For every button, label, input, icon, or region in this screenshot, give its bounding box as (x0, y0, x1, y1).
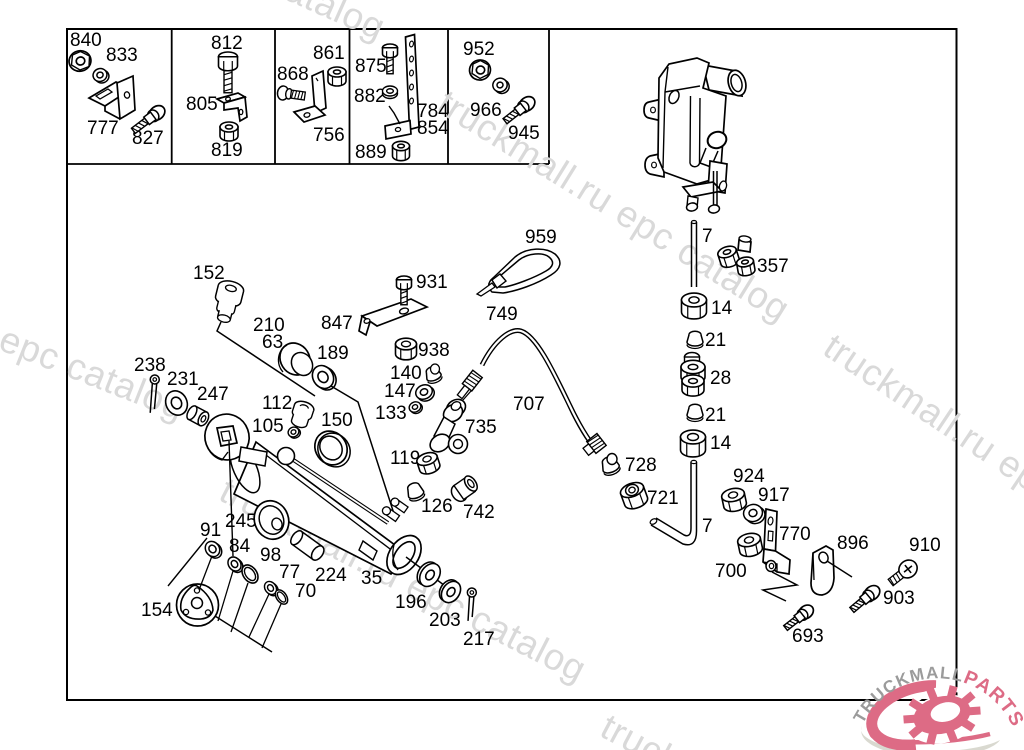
svg-text:966: 966 (470, 100, 502, 121)
svg-text:924: 924 (733, 466, 765, 487)
svg-text:238: 238 (134, 355, 166, 376)
svg-text:952: 952 (463, 39, 495, 60)
svg-text:931: 931 (416, 272, 448, 293)
svg-text:868: 868 (277, 64, 309, 85)
svg-text:189: 189 (317, 343, 349, 364)
svg-text:203: 203 (429, 610, 461, 631)
svg-text:707: 707 (513, 394, 545, 415)
svg-text:7: 7 (702, 226, 713, 247)
svg-text:833: 833 (106, 45, 138, 66)
svg-text:735: 735 (465, 417, 497, 438)
svg-text:112: 112 (262, 393, 292, 414)
svg-text:770: 770 (779, 524, 811, 545)
svg-text:91: 91 (200, 520, 221, 541)
svg-text:938: 938 (418, 340, 450, 361)
svg-text:959: 959 (525, 227, 557, 248)
svg-text:21: 21 (705, 330, 726, 351)
svg-text:903: 903 (883, 588, 915, 609)
svg-text:777: 777 (87, 118, 119, 139)
svg-text:749: 749 (486, 304, 518, 325)
svg-text:889: 889 (355, 142, 387, 163)
svg-text:147: 147 (384, 381, 416, 402)
svg-text:756: 756 (313, 125, 345, 146)
svg-text:910: 910 (909, 535, 941, 556)
svg-text:882: 882 (354, 86, 386, 107)
svg-text:154: 154 (141, 600, 173, 621)
svg-text:150: 150 (321, 410, 353, 431)
svg-text:119: 119 (390, 448, 420, 469)
svg-text:896: 896 (837, 533, 869, 554)
svg-text:693: 693 (792, 626, 824, 647)
svg-text:196: 196 (395, 592, 427, 613)
svg-text:224: 224 (315, 565, 347, 586)
svg-text:917: 917 (758, 485, 790, 506)
svg-text:840: 840 (70, 30, 102, 51)
svg-text:28: 28 (710, 368, 731, 389)
svg-text:35: 35 (361, 568, 382, 589)
svg-text:truckmall.ru epc catalog: truckmall.ru epc catalog (0, 241, 191, 428)
svg-text:847: 847 (321, 313, 353, 334)
svg-text:854: 854 (417, 118, 449, 139)
svg-text:805: 805 (186, 94, 218, 115)
svg-text:875: 875 (355, 56, 387, 77)
svg-text:152: 152 (193, 263, 225, 284)
svg-text:7: 7 (702, 516, 713, 537)
svg-text:truckmall.ru epc catalog: truckmall.ru epc catalog (5, 0, 392, 48)
svg-text:70: 70 (295, 581, 316, 602)
svg-text:700: 700 (715, 561, 747, 582)
svg-text:247: 247 (197, 384, 229, 405)
svg-text:357: 357 (757, 256, 789, 277)
svg-text:21: 21 (705, 405, 726, 426)
svg-text:63: 63 (262, 332, 283, 353)
svg-text:84: 84 (229, 536, 251, 557)
svg-text:77: 77 (279, 562, 300, 583)
svg-text:105: 105 (252, 416, 284, 437)
svg-text:812: 812 (211, 33, 243, 54)
svg-text:14: 14 (710, 433, 732, 454)
svg-text:742: 742 (463, 502, 495, 523)
svg-text:721: 721 (647, 488, 679, 509)
svg-text:728: 728 (625, 455, 657, 476)
svg-text:133: 133 (375, 403, 407, 424)
svg-text:861: 861 (313, 43, 345, 64)
svg-text:217: 217 (463, 629, 495, 650)
svg-text:819: 819 (211, 140, 243, 161)
svg-text:98: 98 (260, 545, 281, 566)
svg-text:126: 126 (421, 496, 453, 517)
svg-text:231: 231 (167, 369, 199, 390)
svg-text:245: 245 (225, 511, 257, 532)
svg-text:14: 14 (711, 298, 733, 319)
svg-text:945: 945 (508, 123, 540, 144)
